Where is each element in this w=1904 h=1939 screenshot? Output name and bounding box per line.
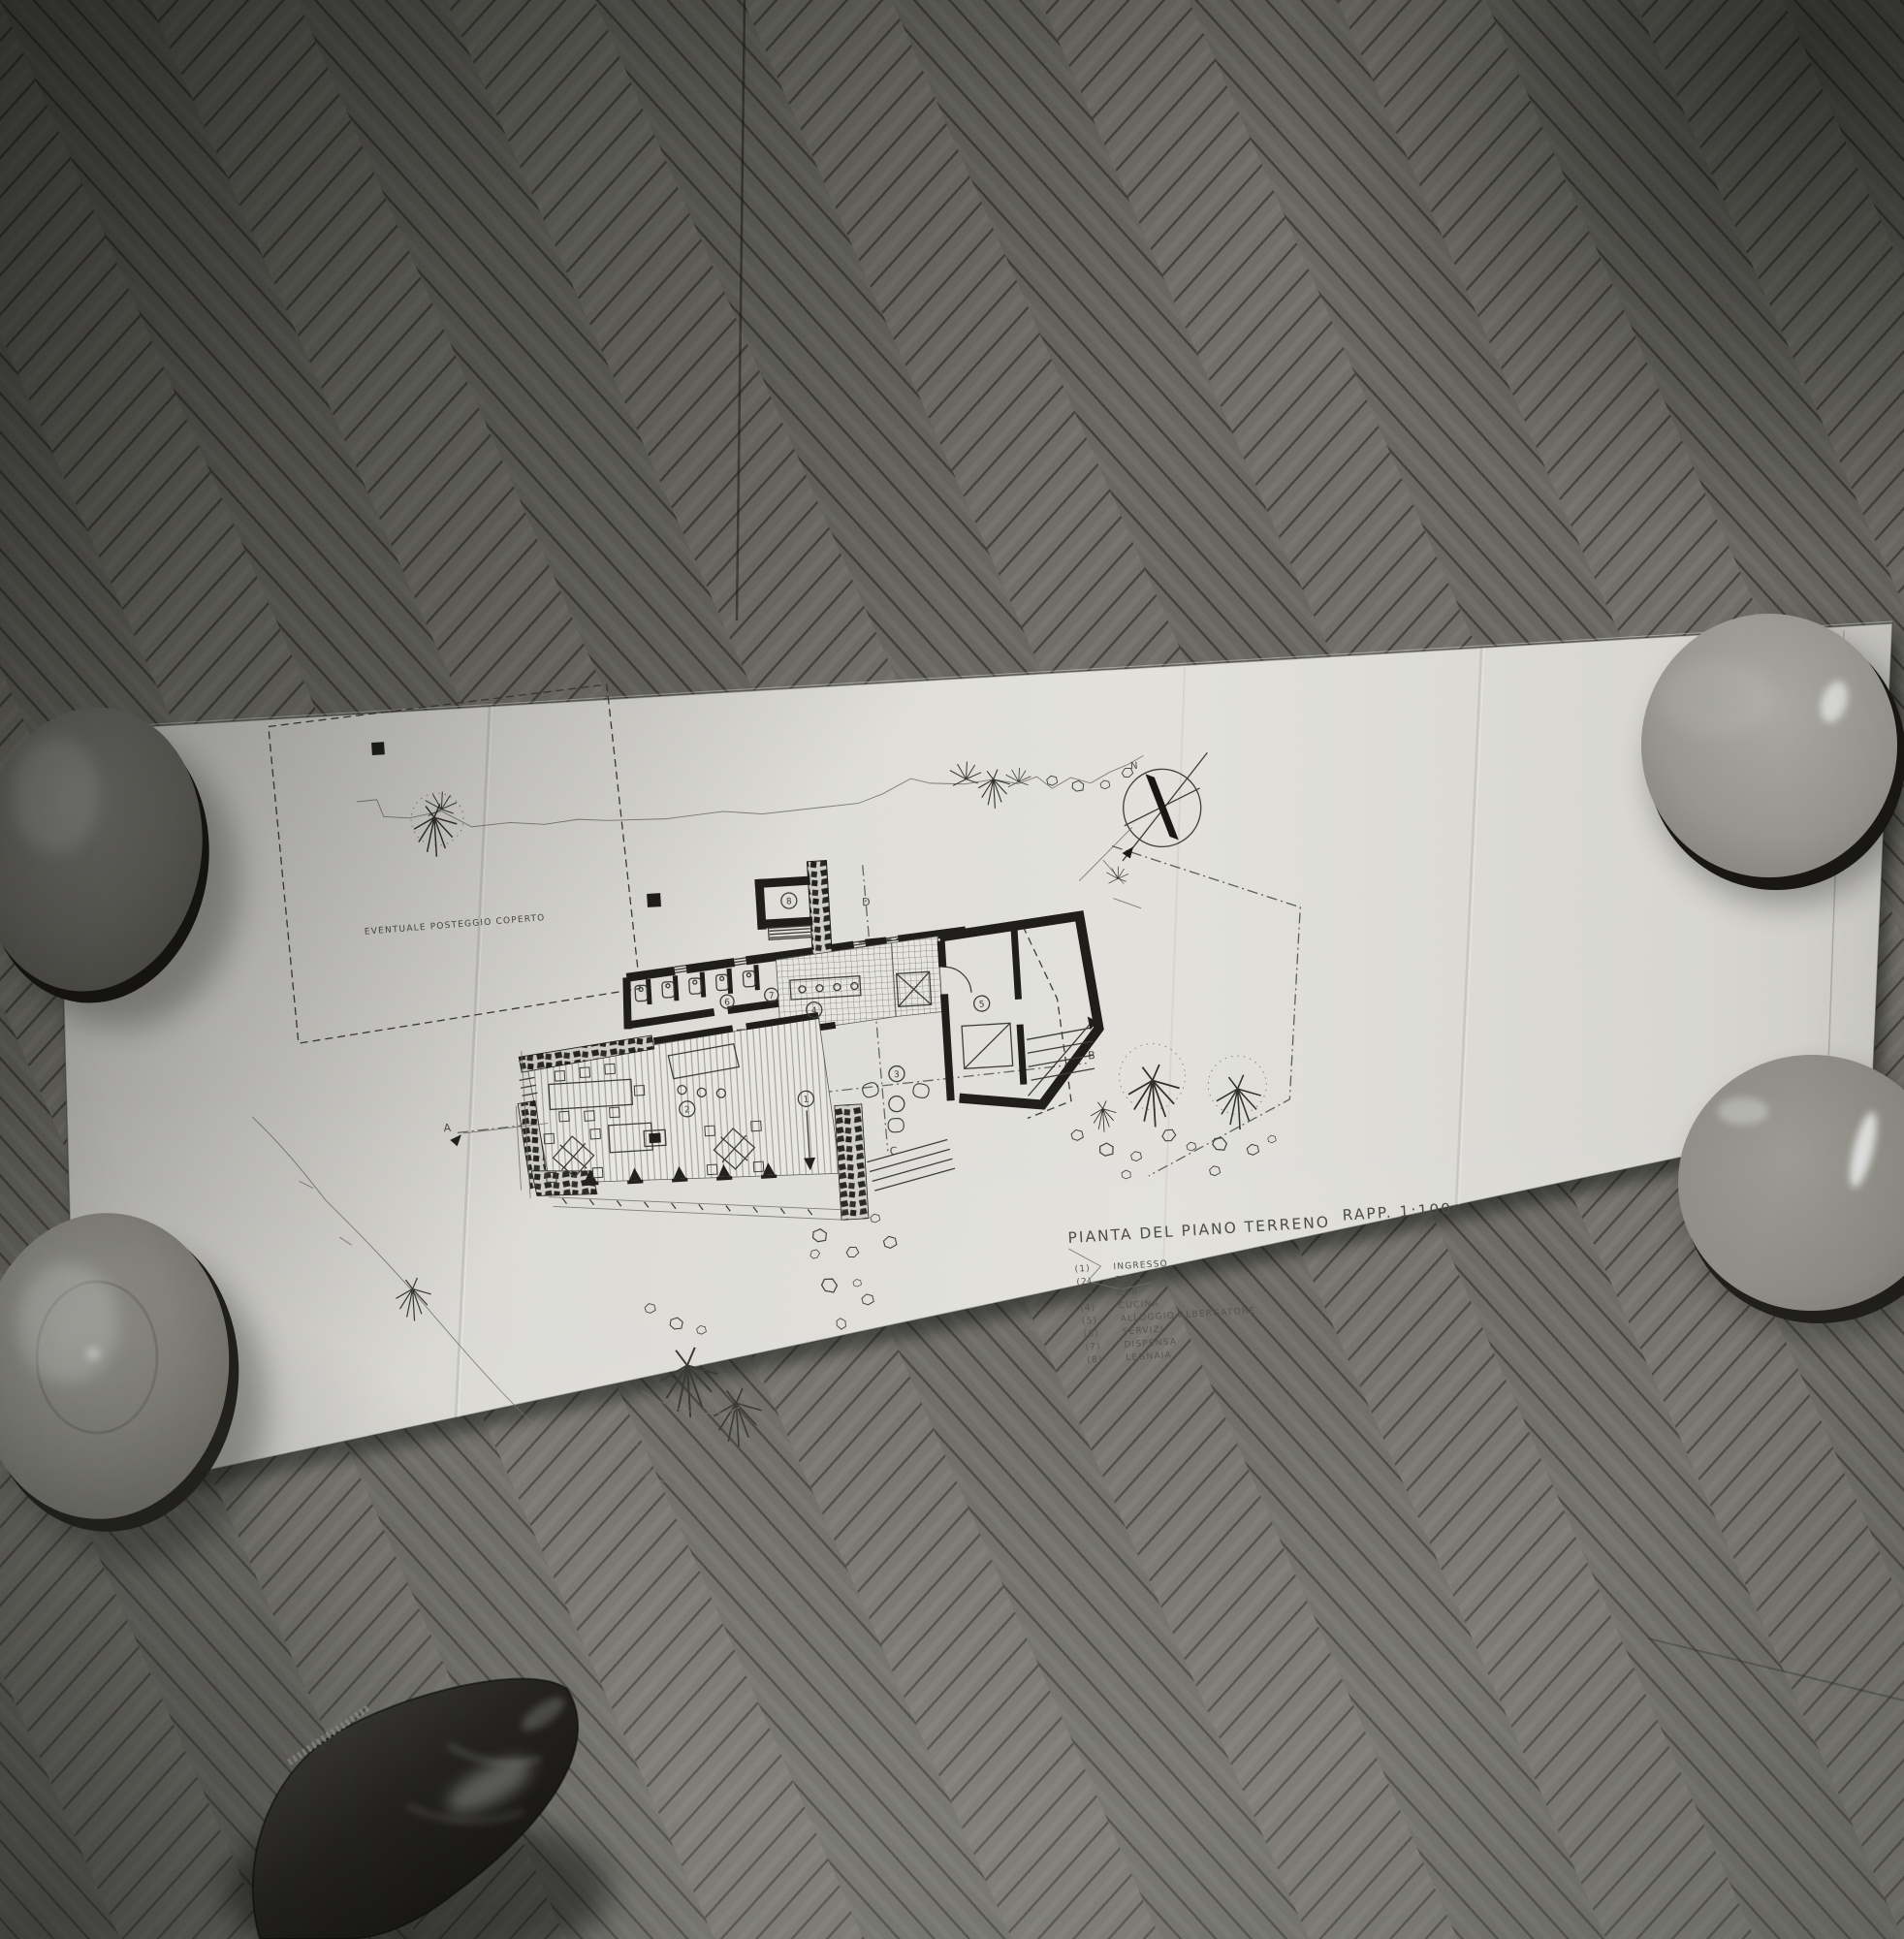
photograph: EVENTUALE POSTEGGIO COPERTO A B C D (0, 0, 1904, 1939)
film-grain (0, 0, 1904, 1939)
